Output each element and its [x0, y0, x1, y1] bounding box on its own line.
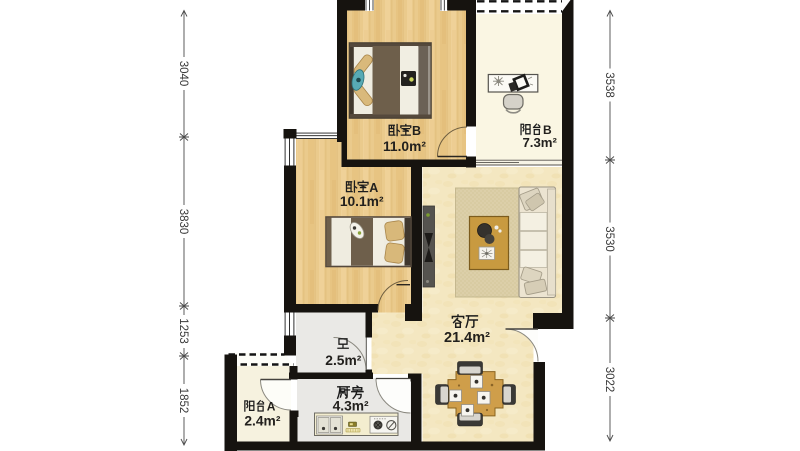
svg-text:3022: 3022 — [603, 367, 615, 393]
svg-text:3830: 3830 — [177, 209, 189, 235]
svg-text:3040: 3040 — [177, 61, 189, 87]
svg-text:3538: 3538 — [603, 72, 615, 98]
svg-text:B: B — [412, 124, 421, 138]
svg-text:2.4m²: 2.4m² — [244, 414, 280, 429]
svg-text:2.5m²: 2.5m² — [325, 353, 361, 368]
svg-text:A: A — [267, 399, 276, 413]
svg-text:A: A — [369, 181, 378, 195]
svg-text:4.3m²: 4.3m² — [333, 399, 369, 414]
svg-text:3530: 3530 — [603, 226, 615, 252]
svg-text:1852: 1852 — [177, 388, 189, 414]
svg-text:21.4m²: 21.4m² — [444, 330, 490, 346]
svg-text:11.0m²: 11.0m² — [383, 139, 426, 154]
svg-text:1253: 1253 — [177, 318, 189, 344]
svg-text:7.3m²: 7.3m² — [522, 135, 557, 150]
svg-text:10.1m²: 10.1m² — [340, 194, 384, 209]
